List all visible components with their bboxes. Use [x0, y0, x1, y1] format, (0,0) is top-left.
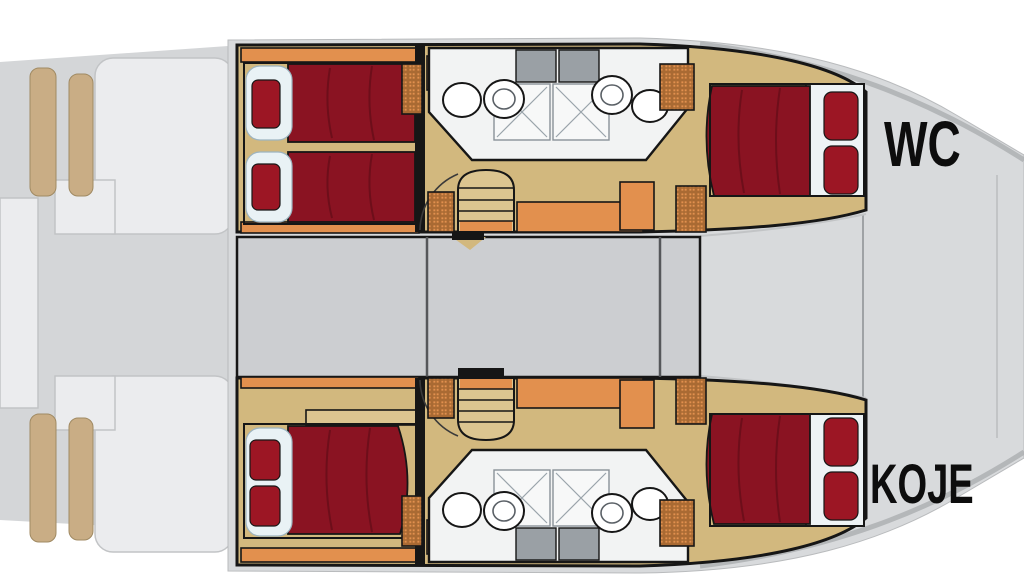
catamaran-floor-plan: WC KOJE — [0, 0, 1024, 576]
stair-step — [460, 379, 512, 389]
hatch-panel — [516, 528, 556, 560]
sink — [443, 493, 481, 527]
locker — [620, 182, 654, 230]
bathroom-starboard — [429, 450, 688, 562]
salon — [237, 231, 700, 377]
label-wc: WC — [884, 109, 961, 180]
hatch-panel — [559, 528, 599, 560]
port-transom-stairs — [30, 68, 56, 196]
berth-duvet — [706, 86, 810, 196]
door-threshold — [458, 368, 504, 377]
floor-plan-drawing: WC KOJE — [0, 0, 1024, 576]
locker — [241, 48, 419, 62]
label-koje: KOJE — [870, 454, 974, 516]
salon-floor — [237, 237, 700, 377]
stair-step — [460, 221, 512, 231]
port-hull — [237, 44, 866, 233]
toilet — [592, 494, 632, 532]
swim-platform — [0, 198, 38, 408]
berth-mattress — [288, 152, 415, 222]
locker-hatched — [428, 378, 454, 418]
locker-hatched — [660, 64, 694, 110]
locker-hatched — [428, 192, 454, 232]
berth-mattress — [288, 64, 415, 142]
berth-duvet — [706, 414, 810, 524]
bathroom-port — [429, 48, 688, 160]
pillow-cushion — [250, 440, 280, 480]
toilet — [592, 76, 632, 114]
hatch-panel — [516, 50, 556, 82]
port-transom-stairs — [69, 74, 93, 196]
pillow-cushion — [824, 472, 858, 520]
locker-hatched — [676, 186, 706, 232]
locker — [241, 377, 419, 388]
pillow-cushion — [250, 486, 280, 526]
stern-transoms — [0, 46, 237, 552]
pillow-cushion — [824, 146, 858, 194]
pillow-cushion — [252, 164, 280, 210]
locker-hatched — [660, 500, 694, 546]
locker-hatched — [402, 64, 422, 114]
pillow-cushion — [824, 418, 858, 466]
toilet — [484, 492, 524, 530]
pillow-cushion — [252, 80, 280, 128]
locker — [241, 548, 419, 562]
toilet — [484, 80, 524, 118]
hatch-panel — [559, 50, 599, 82]
locker-hatched — [402, 496, 422, 546]
starboard-transom-stairs — [30, 414, 56, 542]
berth-mattress — [288, 426, 408, 534]
starboard-hull — [237, 377, 866, 566]
starboard-transom-stairs — [69, 418, 93, 540]
cabin-aft-port — [241, 48, 419, 233]
locker-hatched — [676, 378, 706, 424]
sink — [443, 83, 481, 117]
pillow-cushion — [824, 92, 858, 140]
shelf — [306, 410, 416, 425]
locker — [620, 380, 654, 428]
